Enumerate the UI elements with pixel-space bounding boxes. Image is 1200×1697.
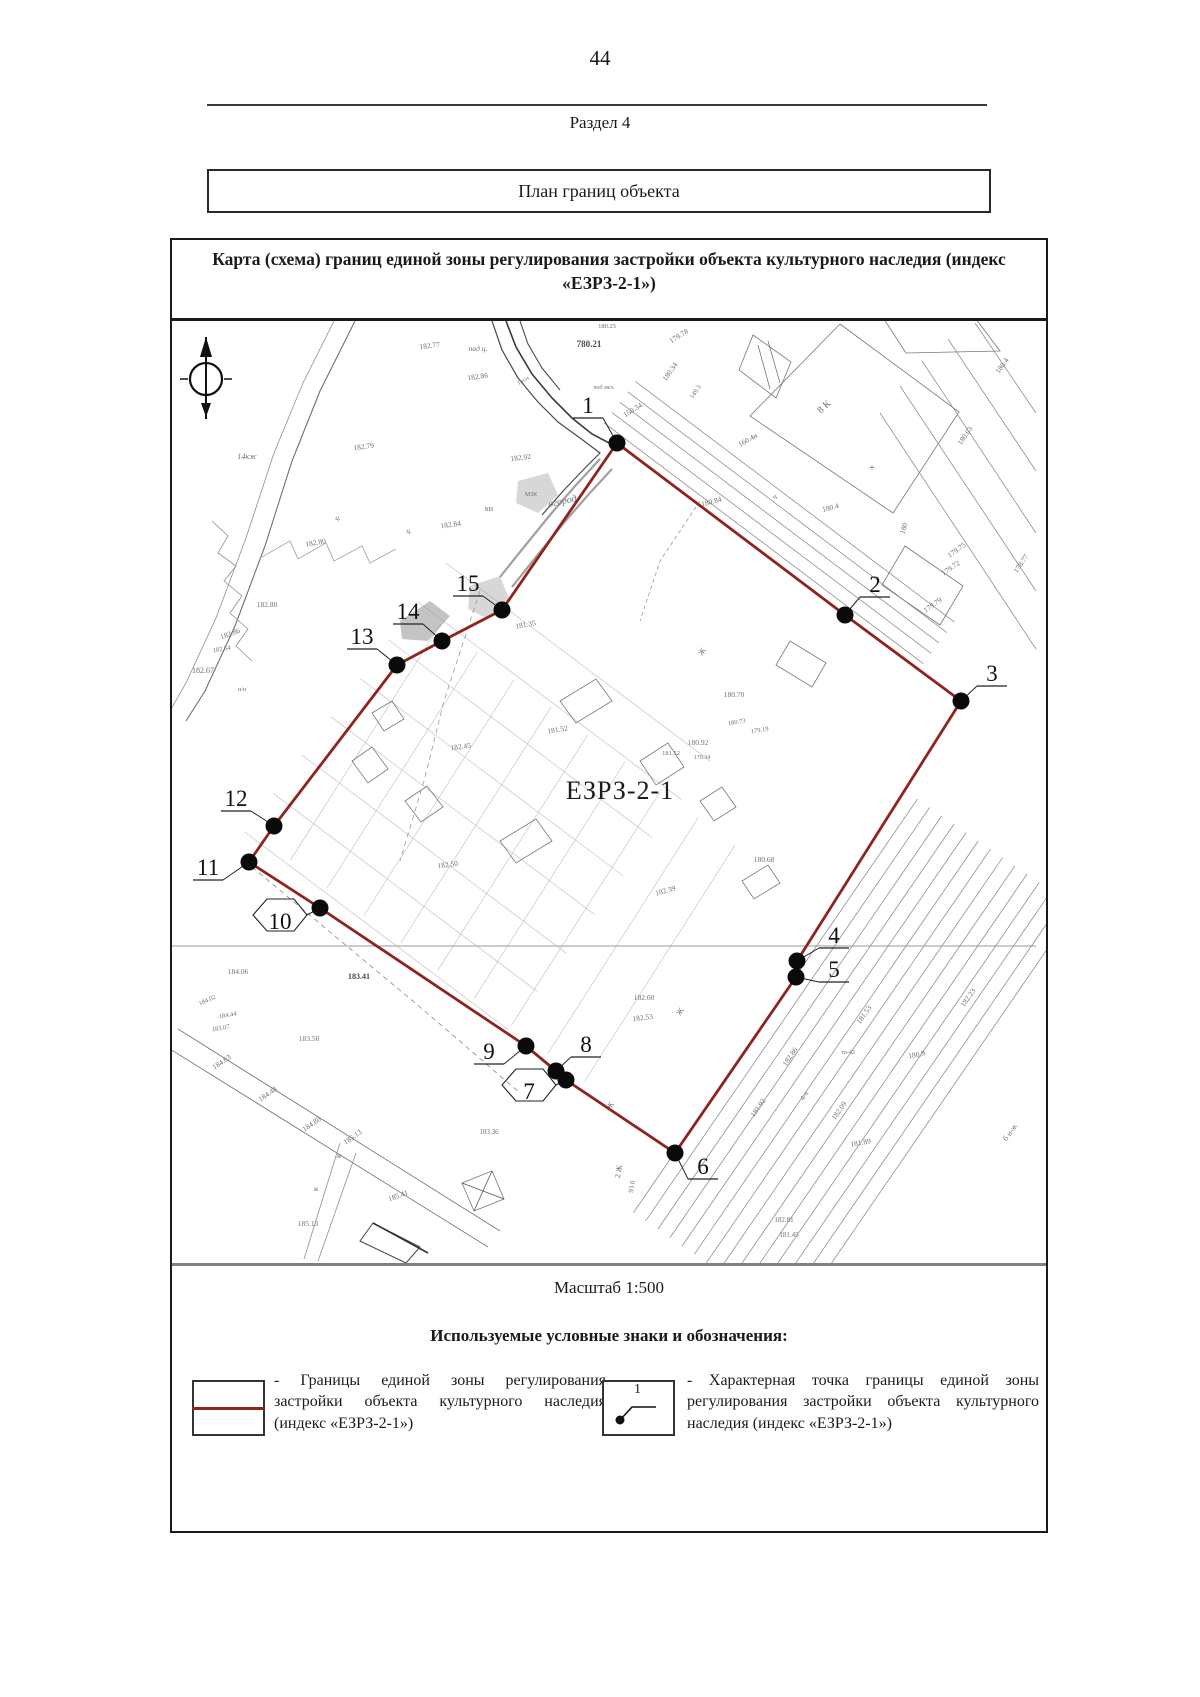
map-annotation: б н-ж <box>1001 1122 1019 1143</box>
boundary-line-sample <box>192 1407 265 1410</box>
map-annotation: 160.4н <box>736 431 759 449</box>
building-outline <box>880 321 1000 353</box>
boundary-point-dot <box>609 435 626 452</box>
map-hatch-line <box>401 707 551 943</box>
map-annotation: 182.60 <box>634 993 655 1002</box>
map-line <box>212 521 252 661</box>
page-number: 44 <box>0 46 1200 71</box>
map-annotation: 182.53 <box>632 1012 654 1024</box>
document-page: 44 Раздел 4 План границ объекта Карта (с… <box>0 0 1200 1697</box>
map-annotation: 184.80 <box>301 1114 323 1133</box>
boundary-point-label: 4 <box>828 923 840 948</box>
legend-boundary-text: - Границы единой зоны регулирования заст… <box>274 1370 606 1434</box>
map-annotation: 93 б <box>627 1179 637 1193</box>
map-annotation: 780.21 <box>577 339 602 349</box>
boundary-point-dot <box>667 1145 684 1162</box>
boundary-point-label: 13 <box>351 624 374 649</box>
boundary-point-dot <box>788 969 805 986</box>
map-annotation: 182.86 <box>467 371 489 383</box>
map-annotation: 182.79 <box>353 441 375 453</box>
map-annotation: 184.02 <box>198 994 217 1008</box>
scale-label: Масштаб 1:500 <box>172 1278 1046 1298</box>
boundary-point-dot <box>312 900 329 917</box>
boundary-point-dot <box>266 818 283 835</box>
boundary-point-dot <box>389 657 406 674</box>
north-arrow-icon <box>200 337 212 357</box>
legend-boundary-symbol <box>192 1380 265 1436</box>
map-annotation: пад ц. <box>469 344 488 353</box>
map-annotation: ц. <box>406 526 412 535</box>
map-annotation: 2 Ж <box>613 1163 624 1178</box>
map-annotation: 180.84 <box>700 495 722 509</box>
building-outline <box>776 641 826 687</box>
map-annotation: Ж <box>604 1099 616 1111</box>
map-line <box>318 1153 356 1261</box>
building-outline <box>405 786 443 822</box>
map-line <box>640 501 700 621</box>
boundary-point-dot <box>434 633 451 650</box>
map-annotation: 182.84 <box>440 519 462 531</box>
header-rule <box>207 104 987 106</box>
map-line <box>252 867 520 1093</box>
boundary-point-label: 10 <box>269 909 292 934</box>
building-outline <box>700 787 736 821</box>
legend-point-text: - Характерная точка границы единой зоны … <box>687 1370 1039 1434</box>
building-outline <box>352 747 388 783</box>
map-annotation: 150.34 <box>622 400 644 419</box>
map-hatch-line <box>635 381 954 622</box>
map-annotation: 180.73 <box>727 718 746 728</box>
map-annotation: 183.07 <box>211 1023 231 1033</box>
map-line <box>186 321 355 721</box>
map-line <box>304 1143 340 1259</box>
map-annotation: 184.63 <box>211 1052 233 1071</box>
map-annotation: 182.86 <box>219 626 242 642</box>
legend-point-symbol: 1 <box>602 1380 675 1436</box>
map-annotation: 181.45 <box>779 1231 799 1239</box>
boundary-point-label: 12 <box>225 786 248 811</box>
map-annotation: 180.92 <box>688 738 709 747</box>
map-annotation: ж <box>313 1185 319 1193</box>
map-hatch-line <box>364 679 514 915</box>
building-outline <box>372 701 404 731</box>
map-line <box>500 459 600 577</box>
building-outline <box>739 335 791 398</box>
map-annotation: кн <box>485 504 494 513</box>
map-annotation: 184.48 <box>257 1084 279 1103</box>
boundary-point-label: 15 <box>457 571 480 596</box>
boundary-point-label: 9 <box>483 1039 495 1064</box>
map-annotation: 179.78 <box>668 326 690 345</box>
boundary-point-dot <box>953 693 970 710</box>
map-annotation: 184.44 <box>218 1010 238 1020</box>
map-hatch-line <box>779 899 1046 1263</box>
map-annotation: 149.3 <box>689 384 703 400</box>
map-line <box>768 341 780 383</box>
map-annotation: 180.70 <box>724 690 745 699</box>
map-hatch-line <box>694 841 978 1255</box>
map-annotation: 181.52 <box>662 750 680 757</box>
map-hatch-line <box>682 832 966 1246</box>
map-line <box>948 339 1036 471</box>
map-annotation: 180.34 <box>660 360 679 382</box>
plan-title-box: План границ объекта <box>207 169 991 213</box>
legend-point-number: 1 <box>634 1382 641 1398</box>
map-hatch-line <box>612 413 931 654</box>
building-outline <box>500 819 552 863</box>
map-annotation: 179.72 <box>940 558 962 577</box>
boundary-point-label: 6 <box>697 1154 709 1179</box>
boundary-point-dot <box>837 607 854 624</box>
map-annotation: 181.53 <box>854 1003 873 1025</box>
boundary-point-label: 5 <box>828 957 840 982</box>
map-hatch-line <box>743 874 1027 1263</box>
map-bottom-rule <box>172 1263 1046 1266</box>
map-annotation: 182.67 <box>192 666 214 675</box>
boundary-point-dot <box>241 854 258 871</box>
map-annotation: МЗК <box>525 492 538 498</box>
map-annotation: 182.23 <box>958 986 977 1008</box>
map-annotation: 180.4 <box>821 501 840 514</box>
map-annotation: 180.68 <box>754 855 775 864</box>
map-annotation: 182.80 <box>305 536 327 548</box>
map-hatch-line <box>719 858 1003 1263</box>
section-label: Раздел 4 <box>0 113 1200 133</box>
map-annotation: ц. <box>335 513 341 522</box>
boundary-point-label: 3 <box>986 661 998 686</box>
map-title: Карта (схема) границ единой зоны регулир… <box>194 247 1024 295</box>
map-annotation: 182.80 <box>257 600 278 609</box>
map-annotation: Ж <box>696 645 708 657</box>
boundary-point-label: 8 <box>580 1032 592 1057</box>
map-annotation: 185.41 <box>387 1188 410 1204</box>
map-annotation: 182.92 <box>510 452 532 464</box>
building-outline <box>742 865 780 899</box>
map-annotation: н/н <box>238 687 247 693</box>
legend-heading: Используемые условные знаки и обозначени… <box>172 1326 1046 1346</box>
map-annotation: 182.81 <box>774 1216 794 1224</box>
map-hatch-line <box>585 845 735 1081</box>
map-annotation: 179.19 <box>750 726 769 736</box>
map-line <box>922 361 1036 533</box>
building-outline <box>560 679 612 723</box>
map-hatch-line <box>273 793 537 991</box>
map-annotation: Ж <box>674 1005 686 1017</box>
map-hatch-line <box>620 402 939 643</box>
map-hatch-line <box>548 817 698 1053</box>
map-annotation: 179.75 <box>946 540 968 559</box>
map-hatch-line <box>511 790 661 1026</box>
map-annotation: 178.77 <box>1011 552 1030 574</box>
cadastral-map: 123456789101112131415182.77пад ц.780.211… <box>172 321 1046 1263</box>
map-hatch-line <box>290 624 440 860</box>
map-annotation: 181.52 <box>547 723 569 735</box>
north-arrow-icon <box>201 403 211 417</box>
map-annotation: 180.9 <box>907 1049 925 1061</box>
map-hatch-line <box>670 824 954 1238</box>
map-annotation: 182.77 <box>419 340 441 352</box>
boundary-point-dot <box>494 602 511 619</box>
map-hatch-line <box>755 883 1039 1263</box>
map-annotation: + <box>869 462 875 474</box>
map-annotation: 182.39 <box>654 884 676 898</box>
map-hatch-line <box>767 891 1046 1263</box>
map-annotation: 183.41 <box>348 972 370 981</box>
boundary-point-label: 11 <box>197 855 219 880</box>
boundary-point-label: 14 <box>397 599 421 624</box>
map-annotation: ж <box>336 1152 342 1160</box>
map-annotation: 8 К <box>815 398 833 416</box>
map-annotation: 182.45 <box>450 741 472 753</box>
map-annotation: под мел. <box>594 384 615 391</box>
boundary-point-label: 1 <box>582 393 594 418</box>
map-line <box>262 541 396 563</box>
map-line <box>900 386 1036 591</box>
map-annotation: 179.34 <box>694 755 711 761</box>
map-annotation: 182.54 <box>212 644 232 654</box>
boundary-point-label: 7 <box>523 1079 535 1104</box>
map-line <box>758 345 770 389</box>
map-area: 123456789101112131415182.77пад ц.780.211… <box>172 321 1046 1263</box>
map-annotation: 182.86 <box>780 1045 799 1067</box>
map-line <box>172 1049 488 1247</box>
map-hatch-line <box>388 640 652 838</box>
map-annotation: 181.89 <box>850 1136 872 1148</box>
map-annotation: 183.36 <box>479 1128 499 1136</box>
map-line <box>172 321 337 711</box>
boundary-point-label: 2 <box>869 572 881 597</box>
map-annotation: 185.13 <box>298 1219 319 1228</box>
map-annotation: 182.09 <box>829 1099 848 1121</box>
map-line <box>373 1223 428 1253</box>
boundary-point-dot <box>789 953 806 970</box>
map-hatch-line <box>706 849 990 1263</box>
plan-title: План границ объекта <box>518 181 679 202</box>
map-annotation: 184.06 <box>228 967 249 976</box>
map-hatch-line <box>604 423 923 664</box>
map-annotation: тп-42 <box>841 1050 855 1056</box>
map-figure-frame: Карта (схема) границ единой зоны регулир… <box>170 238 1048 1533</box>
map-hatch-line <box>438 735 588 971</box>
map-annotation: 180.25 <box>598 323 616 330</box>
boundary-point-dot <box>518 1038 535 1055</box>
boundary-point-dot <box>548 1063 565 1080</box>
map-annotation: 183.50 <box>299 1034 320 1043</box>
map-annotation: 180 <box>898 522 910 535</box>
map-annotation: 14кж <box>237 452 257 461</box>
zone-code-label: ЕЗРЗ-2-1 <box>566 776 674 805</box>
map-annotation: 182.50 <box>437 859 459 871</box>
map-hatch-line <box>646 807 930 1221</box>
